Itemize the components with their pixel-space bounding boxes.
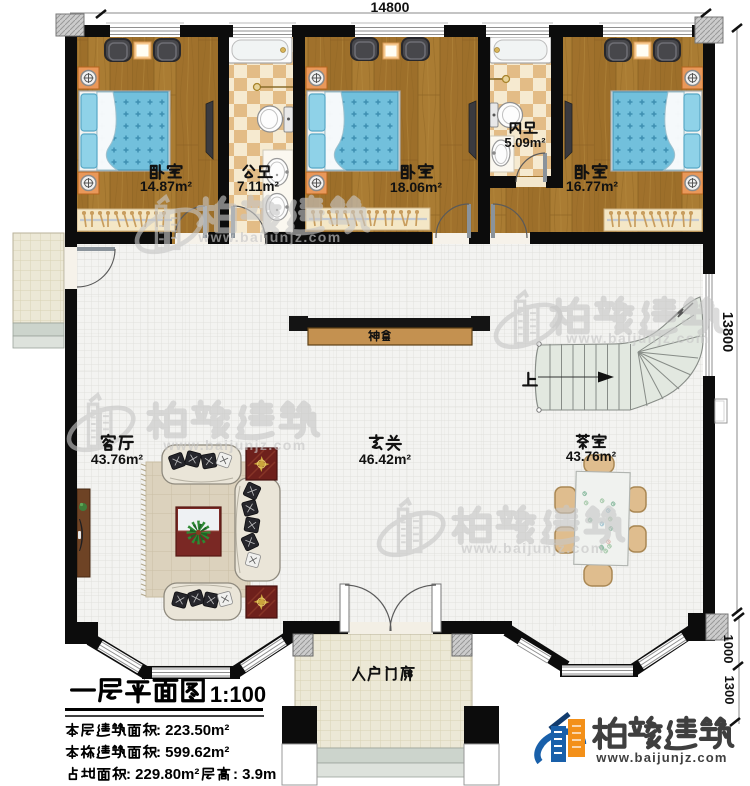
svg-text:5.09m²: 5.09m² (504, 135, 546, 150)
svg-text:18.06m²: 18.06m² (390, 179, 442, 195)
svg-text:43.76m²: 43.76m² (91, 451, 143, 467)
svg-text:7.11m²: 7.11m² (237, 179, 280, 194)
svg-text:: 3.9m: : 3.9m (233, 766, 276, 783)
svg-text:1000: 1000 (721, 635, 736, 664)
svg-text:14.87m²: 14.87m² (140, 178, 192, 194)
svg-text:: 599.62m²: : 599.62m² (156, 744, 229, 761)
svg-text:1:100: 1:100 (210, 682, 266, 707)
svg-text:www.baijunjz.com: www.baijunjz.com (595, 750, 727, 765)
svg-text:www.baijunjz.com: www.baijunjz.com (197, 229, 341, 245)
svg-text:www.baijunjz.com: www.baijunjz.com (162, 437, 306, 453)
svg-text:: 223.50m²: : 223.50m² (156, 722, 229, 739)
svg-text:www.baijunjz.com: www.baijunjz.com (460, 540, 604, 556)
svg-text:46.42m²: 46.42m² (359, 451, 411, 467)
svg-text:43.76m²: 43.76m² (566, 449, 617, 464)
svg-text:1300: 1300 (722, 676, 737, 705)
svg-text:14800: 14800 (371, 0, 410, 15)
svg-text:16.77m²: 16.77m² (566, 178, 618, 194)
svg-text:: 229.80m²: : 229.80m² (126, 766, 199, 783)
svg-text:www.baijunjz.com: www.baijunjz.com (565, 330, 709, 346)
